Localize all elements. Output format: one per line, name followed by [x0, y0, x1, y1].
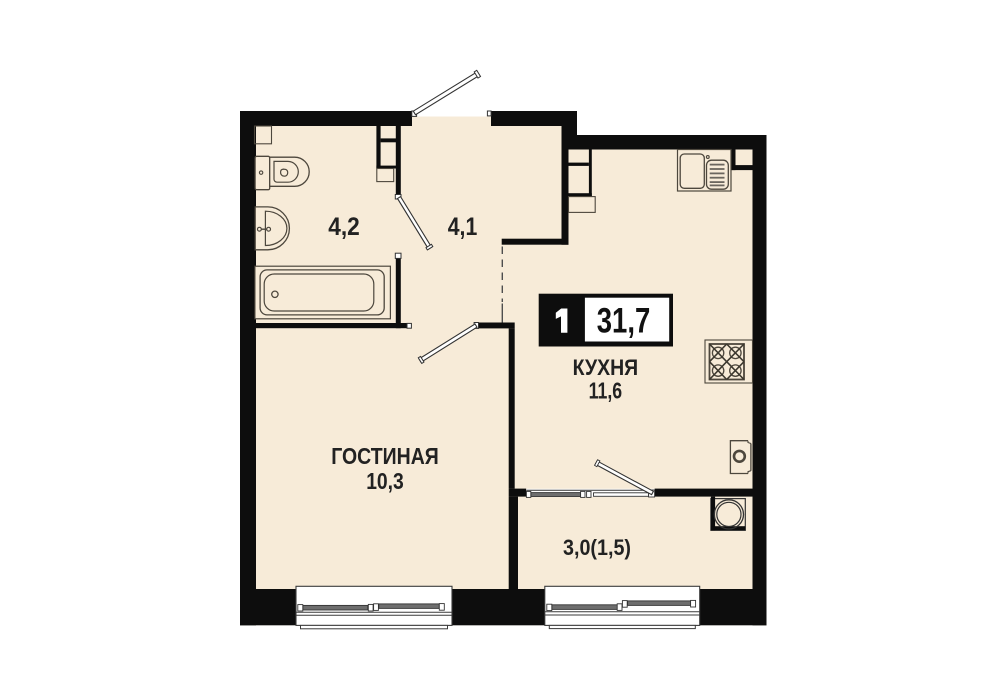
- svg-text:11,6: 11,6: [589, 377, 623, 403]
- svg-text:4,1: 4,1: [448, 213, 478, 241]
- svg-text:10,3: 10,3: [366, 468, 404, 494]
- svg-text:31,7: 31,7: [597, 302, 651, 341]
- svg-text:КУХНЯ: КУХНЯ: [573, 355, 639, 380]
- svg-text:ГОСТИНАЯ: ГОСТИНАЯ: [331, 443, 439, 469]
- svg-text:4,2: 4,2: [328, 213, 360, 241]
- svg-text:3,0(1,5): 3,0(1,5): [563, 535, 631, 560]
